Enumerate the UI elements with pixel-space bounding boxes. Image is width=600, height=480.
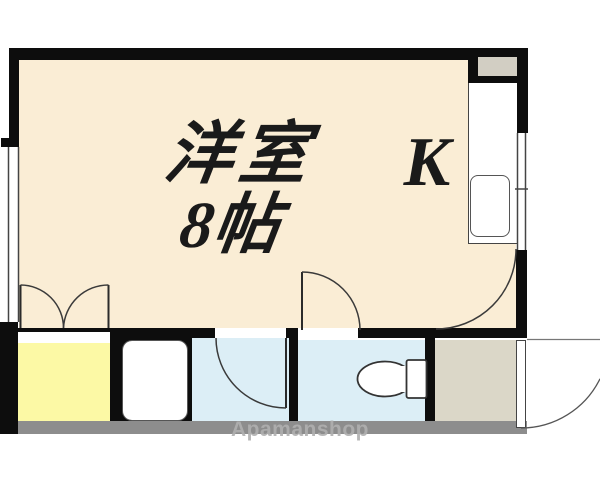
left-window	[9, 147, 19, 322]
toilet-tank	[407, 360, 427, 398]
entry-door-swing	[521, 379, 600, 428]
floorplan: 洋室 8帖 K Apamanshop	[0, 0, 600, 480]
closet-door-left-swing	[21, 285, 64, 328]
right-window	[515, 133, 528, 250]
washroom-door-swing	[216, 338, 286, 408]
toilet-door-swing	[302, 272, 360, 330]
closet-door-right-swing	[64, 285, 109, 328]
kitchen-label: K	[392, 128, 462, 198]
main-room-name-label: 洋室	[155, 120, 325, 188]
kitchen-door-swing	[436, 249, 516, 329]
watermark: Apamanshop	[231, 418, 369, 442]
toilet-fixture	[358, 360, 427, 398]
main-room-size-label: 8帖	[151, 193, 308, 259]
